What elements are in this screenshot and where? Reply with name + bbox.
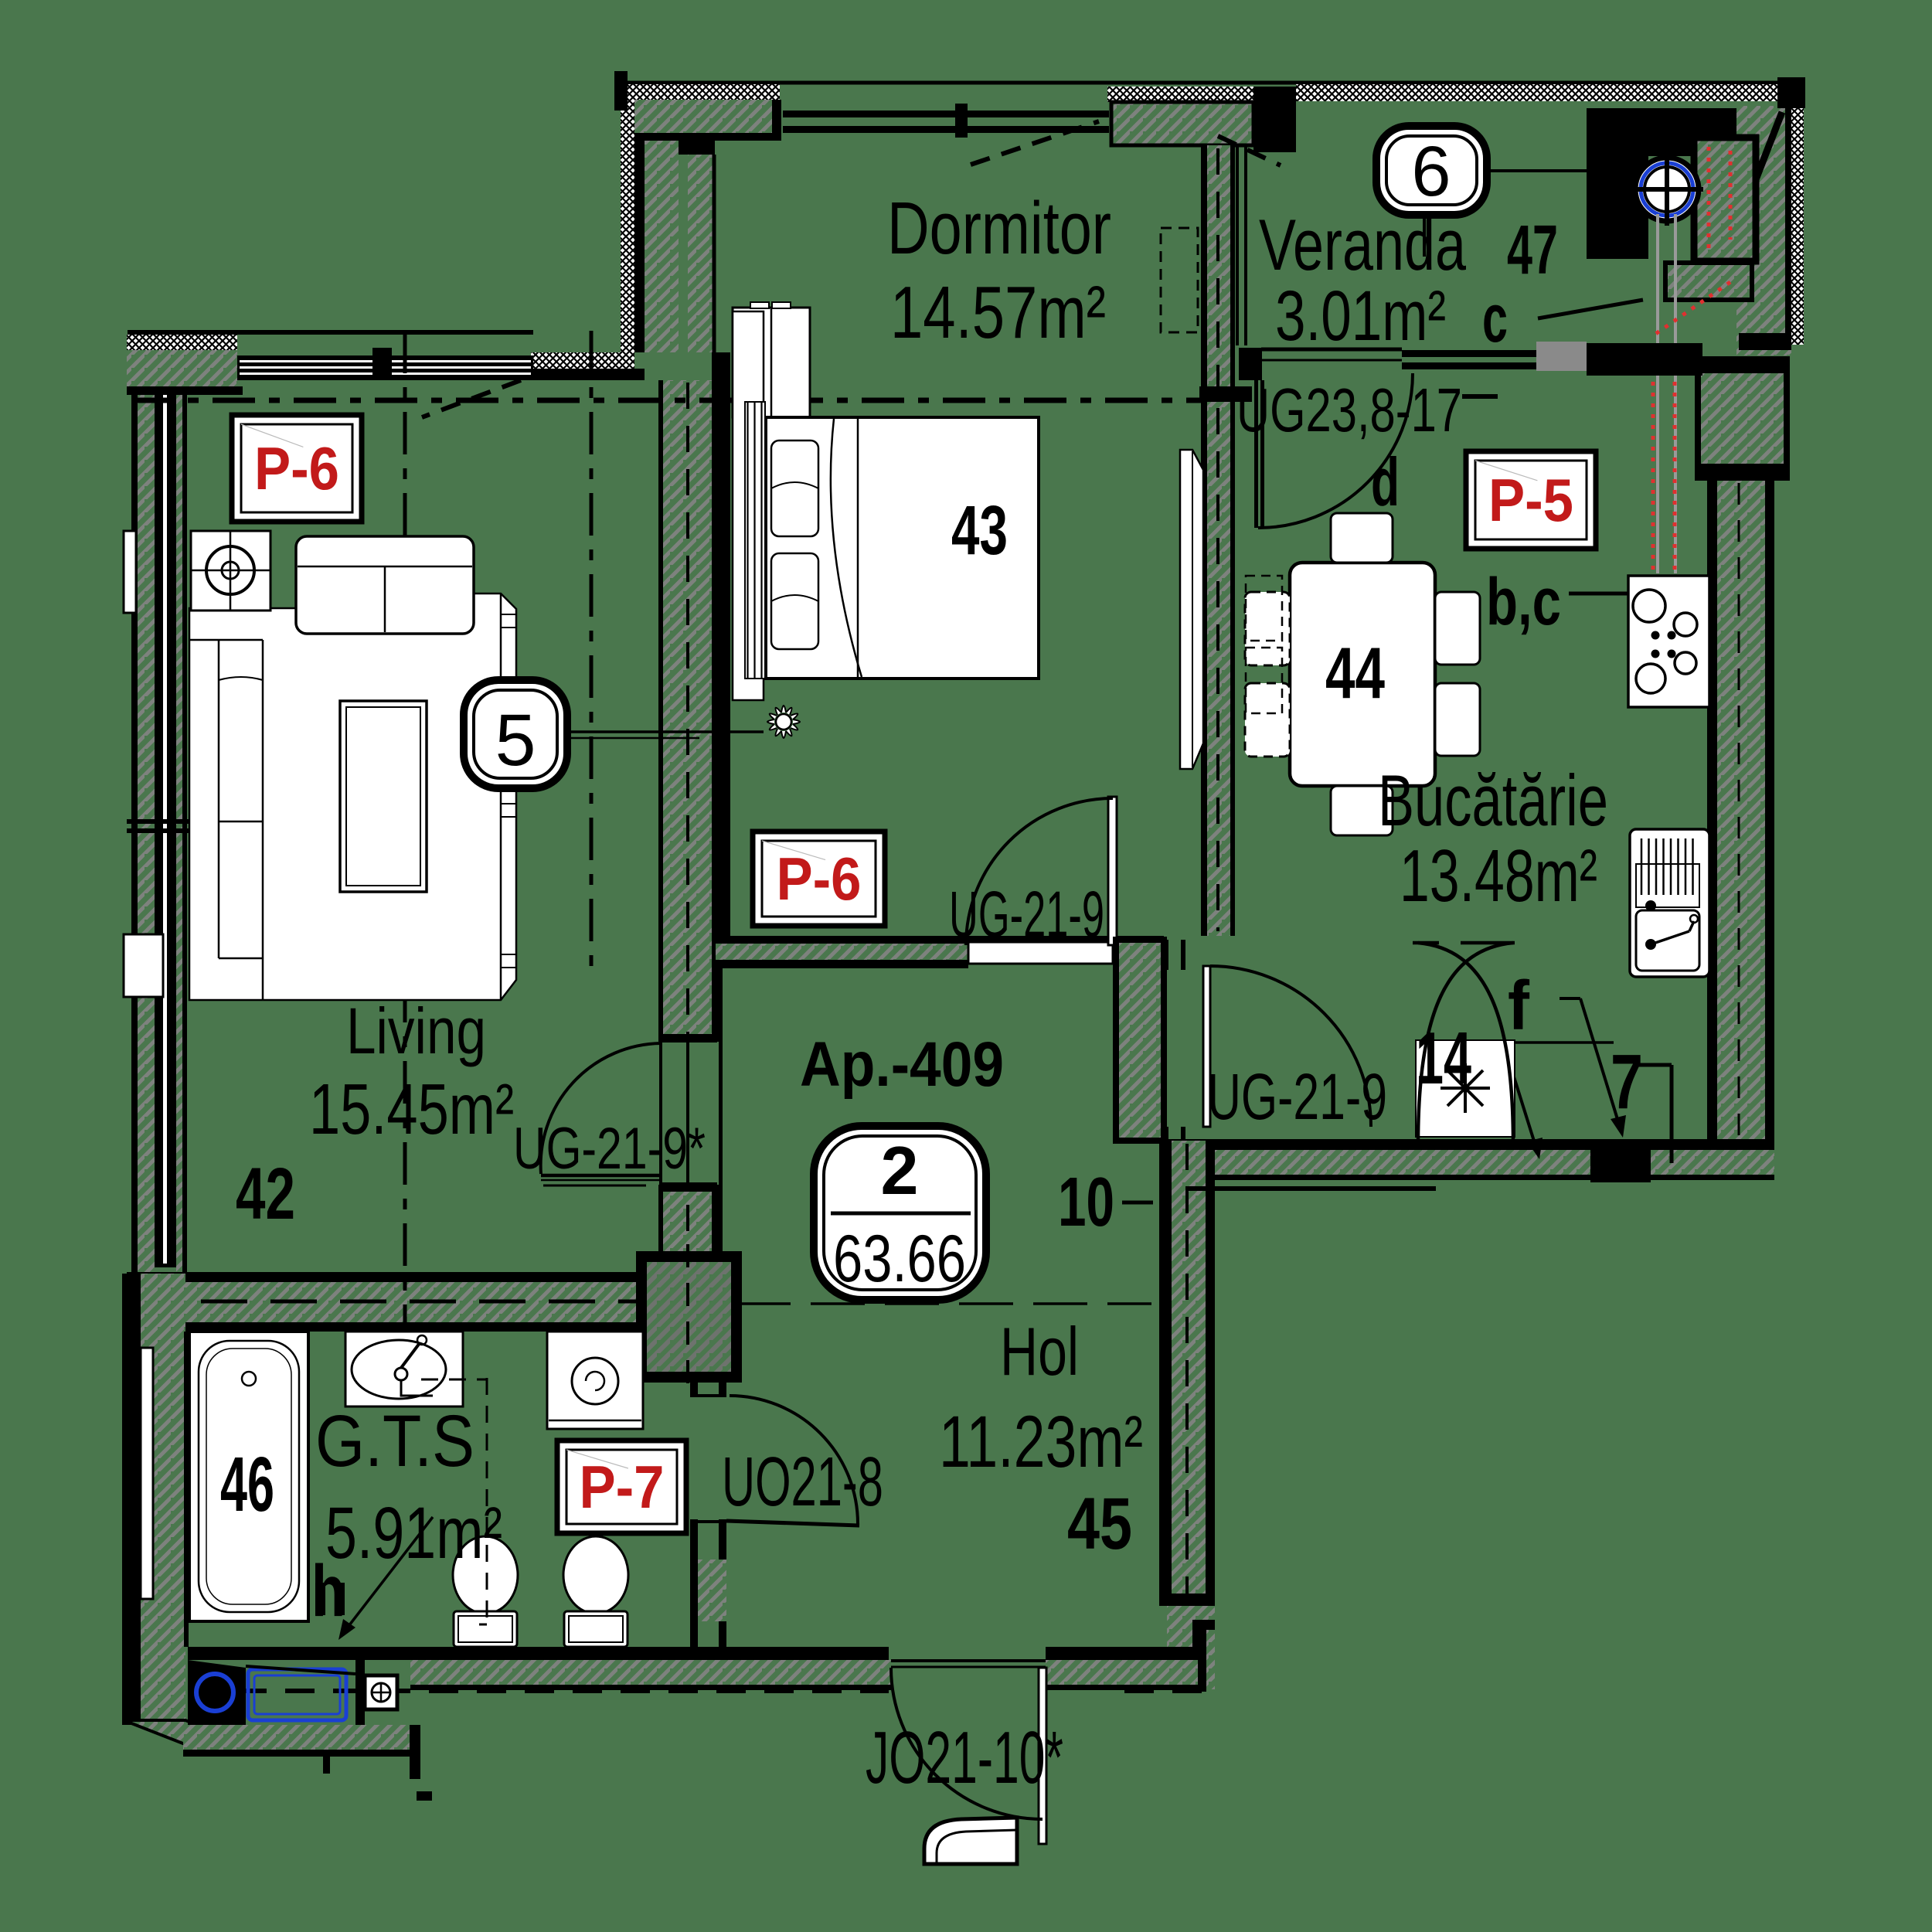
svg-text:42: 42 — [236, 1153, 295, 1235]
svg-text:d: d — [1371, 444, 1400, 520]
svg-text:63.66: 63.66 — [833, 1222, 966, 1296]
svg-text:UG23,8-17: UG23,8-17 — [1236, 376, 1462, 444]
svg-text:Bucătărie: Bucătărie — [1378, 760, 1608, 841]
svg-text:Living: Living — [346, 995, 486, 1067]
svg-text:Hol: Hol — [1000, 1313, 1079, 1389]
svg-text:45: 45 — [1067, 1483, 1132, 1565]
svg-text:10: 10 — [1058, 1164, 1114, 1241]
svg-text:14: 14 — [1416, 1017, 1471, 1100]
svg-text:3.01m²: 3.01m² — [1275, 277, 1446, 355]
svg-text:Dormitor: Dormitor — [887, 187, 1111, 270]
svg-text:14.57m²: 14.57m² — [890, 271, 1106, 354]
svg-text:P-6: P-6 — [777, 845, 862, 913]
svg-text:P-7: P-7 — [580, 1453, 665, 1521]
svg-text:43: 43 — [951, 492, 1008, 570]
svg-text:G.T.S: G.T.S — [315, 1400, 474, 1482]
svg-text:UG-21-9: UG-21-9 — [949, 878, 1104, 951]
svg-text:11.23m²: 11.23m² — [939, 1401, 1143, 1483]
svg-text:6: 6 — [1411, 132, 1451, 211]
svg-text:c: c — [1482, 280, 1508, 356]
svg-text:f: f — [1508, 968, 1530, 1045]
svg-text:7: 7 — [1611, 1039, 1643, 1125]
svg-text:44: 44 — [1325, 632, 1385, 713]
svg-text:P-5: P-5 — [1488, 466, 1573, 534]
svg-text:UG-21-9*: UG-21-9* — [513, 1116, 706, 1182]
svg-text:5: 5 — [495, 699, 536, 781]
svg-text:h: h — [311, 1550, 345, 1632]
svg-text:Veranda: Veranda — [1259, 204, 1467, 285]
svg-text:2: 2 — [881, 1132, 919, 1209]
svg-text:Ap.-409: Ap.-409 — [800, 1029, 1004, 1100]
svg-text:5.91m²: 5.91m² — [325, 1492, 502, 1574]
svg-text:P-6: P-6 — [254, 434, 339, 502]
svg-text:UG-21-9: UG-21-9 — [1207, 1060, 1387, 1133]
svg-text:15.45m²: 15.45m² — [309, 1069, 514, 1149]
svg-text:13.48m²: 13.48m² — [1400, 835, 1597, 917]
svg-text:46: 46 — [220, 1441, 274, 1528]
svg-text:47: 47 — [1507, 212, 1558, 289]
svg-text:UO21-8: UO21-8 — [722, 1444, 883, 1521]
svg-text:JO21-10*: JO21-10* — [866, 1716, 1063, 1799]
svg-text:b,c: b,c — [1486, 565, 1561, 639]
